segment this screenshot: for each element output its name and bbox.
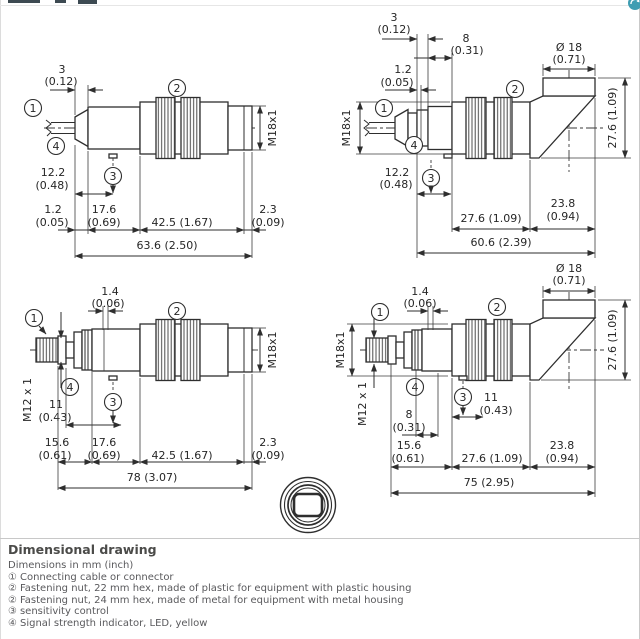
br-mark-4: 4 xyxy=(412,381,419,394)
legend-item: ③sensitivity control xyxy=(8,606,632,617)
legend-marker: ② xyxy=(8,583,17,594)
bl-dim-11: 11 xyxy=(49,398,63,411)
bl-mark-2: 2 xyxy=(174,305,181,318)
legend-text: Connecting cable or connector xyxy=(20,572,174,583)
legend-item: ④Signal strength indicator, LED, yellow xyxy=(8,618,632,629)
tl-dim-122-inch: (0.48) xyxy=(35,179,68,192)
br-dim-total: 75 (2.95) xyxy=(464,476,515,489)
legend-marker: ④ xyxy=(8,618,17,629)
tl-dim-3-inch: (0.12) xyxy=(44,75,77,88)
tr-dim-238: 23.8 xyxy=(551,197,576,210)
legend-item: ②Fastening nut, 24 mm hex, made of metal… xyxy=(8,595,632,606)
legend-item: ②Fastening nut, 22 mm hex, made of plast… xyxy=(8,583,632,594)
legend-marker: ② xyxy=(8,595,17,606)
legend-marker: ③ xyxy=(8,606,17,617)
legend-text: Fastening nut, 22 mm hex, made of plasti… xyxy=(20,583,411,594)
sensor-drawing-straight-connector: 1.4 (0.06) 1 2 4 3 M12 x 1 M18x1 11 xyxy=(21,285,285,490)
tl-dim-12-inch: (0.05) xyxy=(35,216,68,229)
tr-mark-2: 2 xyxy=(512,83,519,96)
tr-dim-12-inch: (0.05) xyxy=(380,76,413,89)
tl-mark-4: 4 xyxy=(53,140,60,153)
br-dim-156-inch: (0.61) xyxy=(391,452,424,465)
legend-list: ①Connecting cable or connector ②Fastenin… xyxy=(8,572,632,629)
br-mark-1: 1 xyxy=(377,306,384,319)
dimensional-drawing-figure: 3 (0.12) 1 2 4 3 12.2 (0.48) M18x1 1.2 xyxy=(0,0,640,537)
br-dim-14-inch: (0.06) xyxy=(403,297,436,310)
bl-dim-11-inch: (0.43) xyxy=(38,411,71,424)
bl-dim-total: 78 (3.07) xyxy=(127,471,178,484)
legend-text: Signal strength indicator, LED, yellow xyxy=(20,618,207,629)
tr-mark-4: 4 xyxy=(411,139,418,152)
section-title: Dimensional drawing xyxy=(8,542,632,557)
tl-dim-23: 2.3 xyxy=(259,203,277,216)
br-dim-238-inch: (0.94) xyxy=(545,452,578,465)
tl-dim-176: 17.6 xyxy=(92,203,117,216)
legend-text: Fastening nut, 24 mm hex, made of metal … xyxy=(20,595,404,606)
sensor-drawing-straight-cable: 3 (0.12) 1 2 4 3 12.2 (0.48) M18x1 1.2 xyxy=(25,63,285,258)
tl-dim-12: 1.2 xyxy=(44,203,62,216)
dimensions-unit-note: Dimensions in mm (inch) xyxy=(8,560,632,571)
bl-dim-176: 17.6 xyxy=(92,436,117,449)
tr-dim-height: 27.6 (1.09) xyxy=(606,87,619,148)
bl-dim-156-inch: (0.61) xyxy=(38,449,71,462)
br-dim-11: 11 xyxy=(484,391,498,404)
sensor-front-view xyxy=(281,478,336,533)
bl-mark-1: 1 xyxy=(31,312,38,325)
dimensional-drawing-footer: Dimensional drawing Dimensions in mm (in… xyxy=(8,542,632,629)
tr-mark-1: 1 xyxy=(381,102,388,115)
tl-dim-total: 63.6 (2.50) xyxy=(136,239,197,252)
tr-dim-238-inch: (0.94) xyxy=(546,210,579,223)
bl-thread-label: M18x1 xyxy=(266,332,279,369)
tr-dim-276: 27.6 (1.09) xyxy=(460,212,521,225)
tr-dim-total: 60.6 (2.39) xyxy=(470,236,531,249)
tl-mark-1: 1 xyxy=(30,102,37,115)
bl-m12-label: M12 x 1 xyxy=(21,378,34,422)
br-dim-276: 27.6 (1.09) xyxy=(461,452,522,465)
br-thread-label: M18x1 xyxy=(334,332,347,369)
tr-dim-dia-inch: (0.71) xyxy=(552,53,585,66)
tl-thread-label: M18x1 xyxy=(266,110,279,147)
tr-dim-12: 1.2 xyxy=(394,63,412,76)
bl-dim-23: 2.3 xyxy=(259,436,277,449)
section-divider xyxy=(0,538,640,539)
datasheet-dimensional-drawing-page: 3 (0.12) 1 2 4 3 12.2 (0.48) M18x1 1.2 xyxy=(0,0,640,639)
tr-dim-122-inch: (0.48) xyxy=(379,178,412,191)
br-dim-8: 8 xyxy=(406,408,413,421)
br-dim-height: 27.6 (1.09) xyxy=(606,309,619,370)
bl-dim-23-inch: (0.09) xyxy=(251,449,284,462)
tl-dim-425: 42.5 (1.67) xyxy=(151,216,212,229)
legend-marker: ① xyxy=(8,572,17,583)
tl-dim-122: 12.2 xyxy=(41,166,66,179)
bl-dim-176-inch: (0.69) xyxy=(87,449,120,462)
br-dim-8-inch: (0.31) xyxy=(392,421,425,434)
br-dim-238: 23.8 xyxy=(550,439,575,452)
tl-mark-3: 3 xyxy=(110,170,117,183)
br-dim-11-inch: (0.43) xyxy=(479,404,512,417)
bl-dim-156: 15.6 xyxy=(45,436,70,449)
br-dim-dia-inch: (0.71) xyxy=(552,274,585,287)
sensor-drawing-angled-connector: Ø 18 (0.71) 27.6 (1.09) 1.4 (0.06) M18x1 xyxy=(334,262,631,497)
bl-mark-3: 3 xyxy=(110,396,117,409)
bl-mark-4: 4 xyxy=(67,381,74,394)
tl-dim-176-inch: (0.69) xyxy=(87,216,120,229)
br-mark-3: 3 xyxy=(460,391,467,404)
tl-mark-2: 2 xyxy=(174,82,181,95)
br-m12-label: M12 x 1 xyxy=(356,382,369,426)
tl-dim-23-inch: (0.09) xyxy=(251,216,284,229)
sensor-drawing-angled-cable: 3 (0.12) 8 (0.31) 1.2 (0.05) Ø 18 (0.71) xyxy=(340,11,631,258)
tr-dim-3-inch: (0.12) xyxy=(377,23,410,36)
tr-thread-label: M18x1 xyxy=(340,110,353,147)
tr-dim-8-inch: (0.31) xyxy=(450,44,483,57)
bl-dim-425: 42.5 (1.67) xyxy=(151,449,212,462)
legend-item: ①Connecting cable or connector xyxy=(8,572,632,583)
br-dim-156: 15.6 xyxy=(397,439,422,452)
br-mark-2: 2 xyxy=(494,301,501,314)
legend-text: sensitivity control xyxy=(20,606,109,617)
tr-mark-3: 3 xyxy=(428,172,435,185)
